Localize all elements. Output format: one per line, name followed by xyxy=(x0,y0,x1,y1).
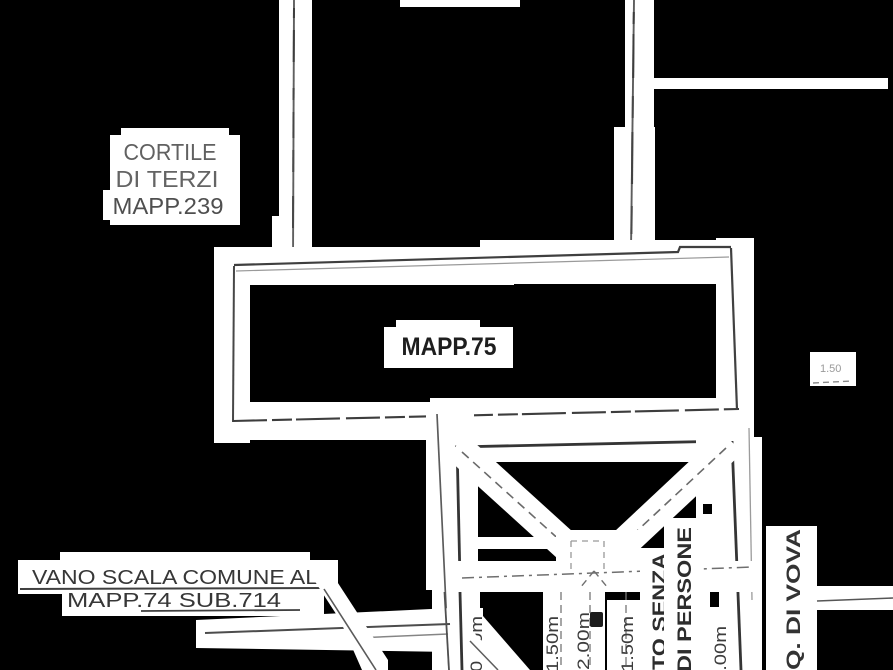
svg-text:Q. DI VOVA: Q. DI VOVA xyxy=(784,529,805,670)
svg-text:1.50m: 1.50m xyxy=(543,616,562,670)
svg-text:CORTILE: CORTILE xyxy=(124,139,217,165)
svg-text:1.50: 1.50 xyxy=(820,363,841,375)
svg-text:1.50m: 1.50m xyxy=(618,616,637,670)
svg-text:VANO SCALA COMUNE AL: VANO SCALA COMUNE AL xyxy=(32,567,318,589)
svg-text:MAPP.239: MAPP.239 xyxy=(113,193,224,219)
svg-text:0.00m: 0.00m xyxy=(711,626,730,670)
svg-text:MAPP.75: MAPP.75 xyxy=(402,333,497,361)
svg-text:DI TERZI: DI TERZI xyxy=(116,166,219,192)
svg-text:MAPP.74 SUB.714: MAPP.74 SUB.714 xyxy=(67,590,281,612)
svg-text:DI PERSONE: DI PERSONE xyxy=(675,527,696,670)
